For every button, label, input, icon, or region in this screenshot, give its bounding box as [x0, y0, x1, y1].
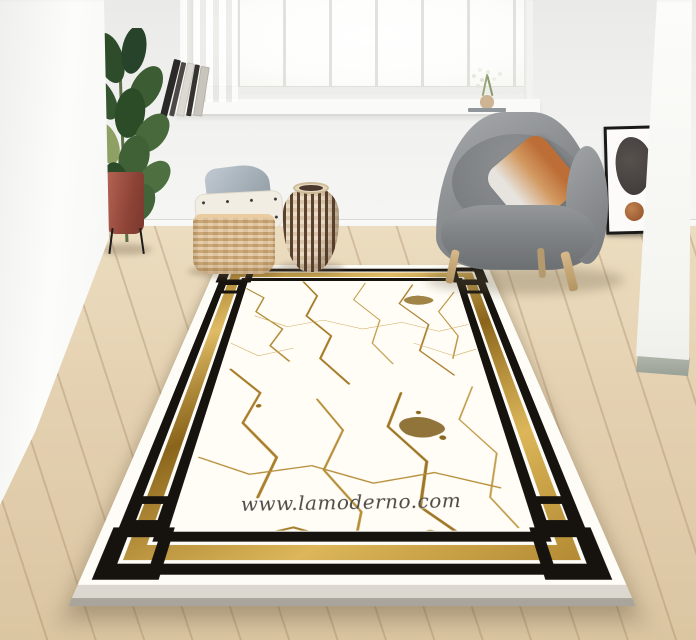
room-photo: www.lamoderno.com — [0, 0, 696, 640]
armchair-seat — [441, 205, 595, 269]
watermark-text: www.lamoderno.com — [236, 488, 466, 516]
flower-vase — [480, 95, 494, 109]
plant-pot — [106, 172, 144, 234]
woven-basket — [193, 214, 275, 274]
vase-opening — [299, 185, 323, 191]
art-dot-shape — [625, 202, 644, 221]
sill-flowers — [462, 66, 516, 116]
window-jamb-right — [524, 0, 533, 100]
flower-sprig — [478, 68, 482, 72]
flower-stem — [487, 76, 494, 96]
